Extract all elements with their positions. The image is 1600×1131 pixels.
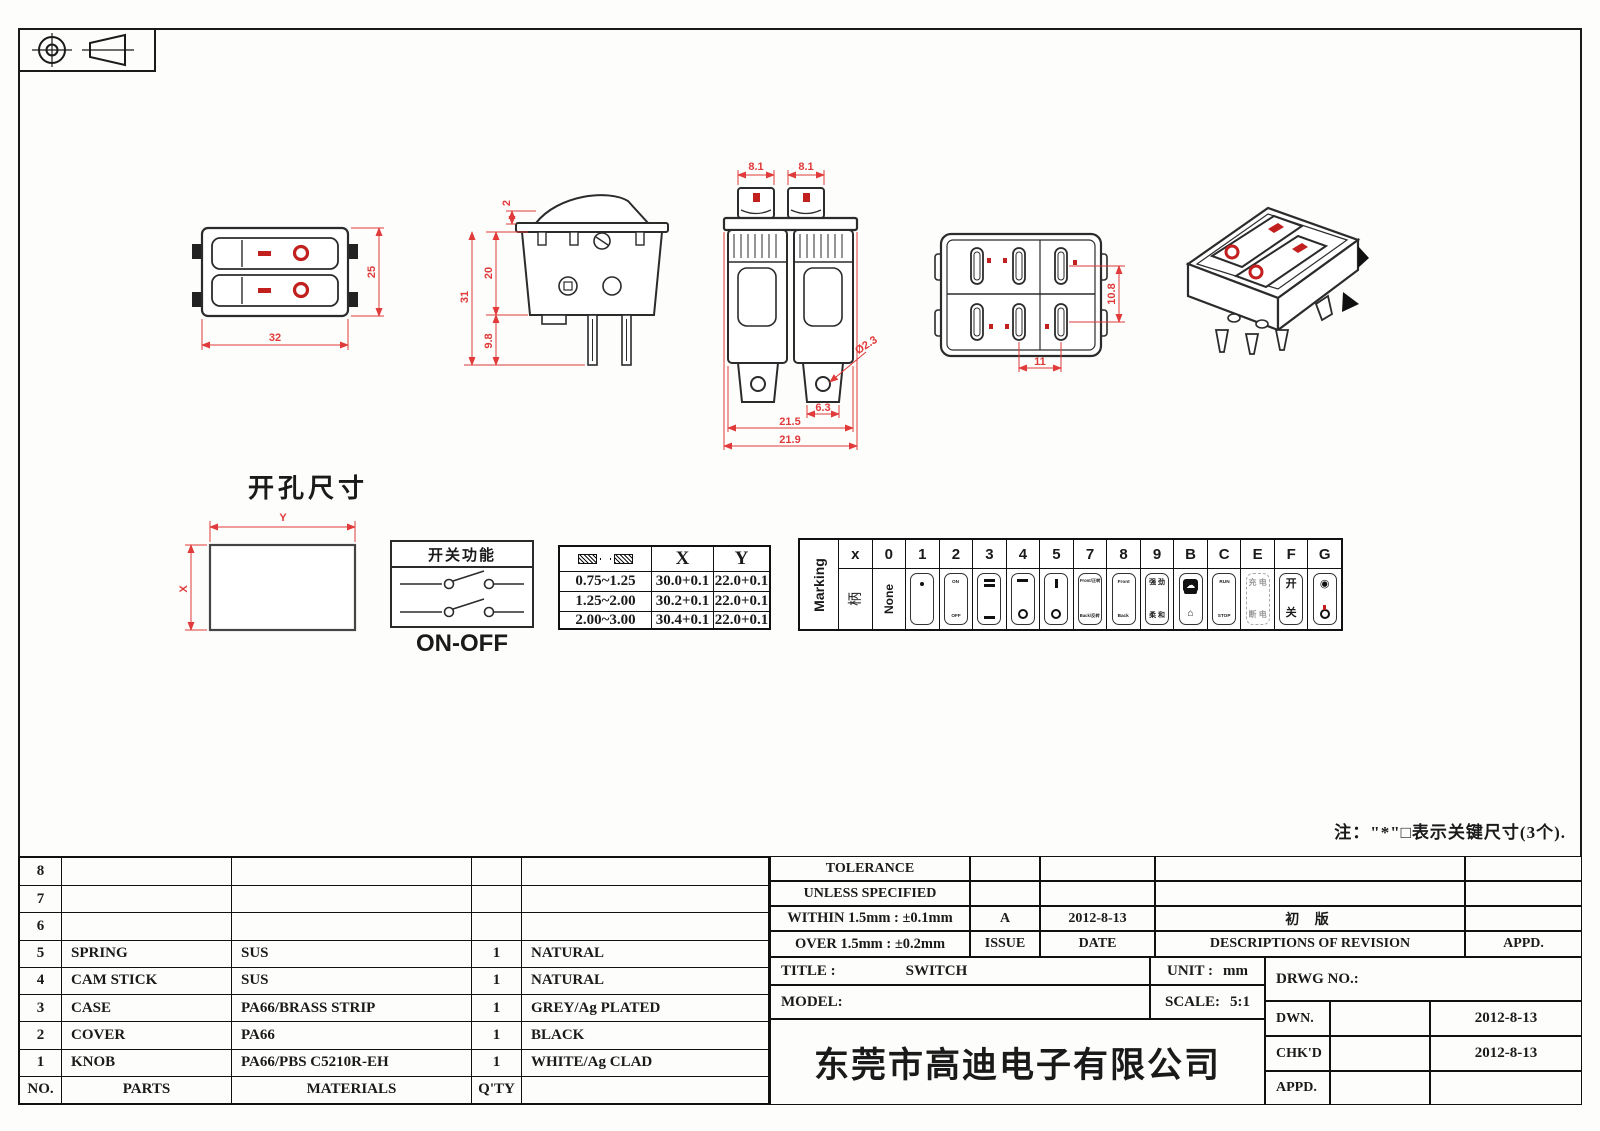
header-materials: MATERIALS <box>232 1076 472 1103</box>
chkd-name <box>1330 1036 1430 1071</box>
marking-code: 4 <box>1007 540 1040 569</box>
row-no: 5 <box>20 940 62 967</box>
dim-overall-width: 21.9 <box>779 434 800 446</box>
kai-label: 开 <box>1286 579 1297 590</box>
marking-col-2: 2 ONOFF <box>940 540 974 629</box>
header-qty: Q'TY <box>472 1076 522 1103</box>
panel-size-table: X Y 0.75~1.25 30.0+0.1 22.0+0.1 1.25~2.0… <box>558 545 771 630</box>
tolerance-title-1: TOLERANCE <box>770 856 970 881</box>
part-qty: 1 <box>472 994 522 1021</box>
projection-symbol-box <box>18 28 156 72</box>
table-cell: 22.0+0.1 <box>714 572 769 592</box>
drwg-no-cell: DRWG NO.: <box>1265 957 1582 1001</box>
part-name <box>62 885 232 912</box>
vertical-bar-icon <box>1055 579 1058 588</box>
dim-knob-right: 8.1 <box>798 161 813 173</box>
col-header-y: Y <box>714 547 769 572</box>
appd-label: APPD. <box>1465 931 1582 957</box>
cutout-view: Y X <box>175 505 375 640</box>
marking-col-5: 5 <box>1040 540 1074 629</box>
row-no: 4 <box>20 967 62 994</box>
empty-cell <box>1155 881 1465 906</box>
title-block: TOLERANCE UNLESS SPECIFIED WITHIN 1.5mm … <box>770 856 1582 1105</box>
company-name: 东莞市高迪电子有限公司 <box>770 1019 1265 1105</box>
dim-side-body: 20 <box>483 267 495 279</box>
part-material: SUS <box>232 940 472 967</box>
front-view: 32 25 <box>178 198 398 368</box>
model-cell: MODEL: <box>770 985 1150 1019</box>
part-finish: BLACK <box>522 1021 768 1048</box>
part-name: COVER <box>62 1021 232 1048</box>
dim-bottom-horizontal: 11 <box>1034 356 1046 368</box>
dim-side-pin: 9.8 <box>483 333 495 348</box>
empty-cell <box>1465 856 1582 881</box>
part-material <box>232 912 472 939</box>
part-material: SUS <box>232 967 472 994</box>
marking-row-label: Marking <box>800 540 839 629</box>
revision-desc-label: DESCRIPTIONS OF REVISION <box>1155 931 1465 957</box>
target-power-marking-pill: ◉ <box>1313 573 1337 625</box>
chkd-date: 2012-8-13 <box>1430 1036 1582 1071</box>
scale-cell: SCALE: 5:1 <box>1150 985 1265 1019</box>
table-cell: 30.0+0.1 <box>652 572 714 592</box>
dim-body-width: 21.5 <box>779 416 800 428</box>
empty-cell <box>970 881 1040 906</box>
header-parts: PARTS <box>62 1076 232 1103</box>
bottom-view: 10.8 11 <box>925 222 1135 380</box>
parts-table: 8 7 6 5 SPRING SUS 1 NATURAL 4 CAM STICK… <box>18 856 770 1105</box>
end-view: 8.1 8.1 Ø2.3 6.3 21.5 21.9 <box>708 158 888 458</box>
part-material: PA66/PBS C5210R-EH <box>232 1049 472 1076</box>
marking-code: F <box>1275 540 1308 569</box>
marking-col-C: C RUNSTOP <box>1208 540 1242 629</box>
dim-front-height: 25 <box>366 266 378 278</box>
row-no: 2 <box>20 1021 62 1048</box>
drawing-sheet: 32 25 <box>0 0 1600 1131</box>
dwn-name <box>1330 1001 1430 1036</box>
switch-function-title: 开关功能 <box>392 542 532 568</box>
switch-function-box: 开关功能 <box>390 540 534 628</box>
part-material <box>232 885 472 912</box>
marking-col-x: x 柄 <box>839 540 873 629</box>
front-back-marking-pill: FrontBack <box>1112 573 1136 625</box>
line-circle-marking-pill <box>1044 573 1068 625</box>
dot-icon <box>920 582 924 586</box>
marking-code: 9 <box>1141 540 1174 569</box>
strong-label: 强 劲 <box>1149 579 1165 586</box>
part-qty: 1 <box>472 1049 522 1076</box>
row-no: 8 <box>20 858 62 885</box>
dot-marking-pill <box>910 573 934 625</box>
target-icon: ◉ <box>1320 579 1330 590</box>
empty-cell <box>1465 906 1582 931</box>
isometric-view <box>1150 172 1375 357</box>
part-name <box>62 912 232 939</box>
table-cell: 2.00~3.00 <box>560 612 652 629</box>
circle-icon <box>1051 609 1061 619</box>
scale-value: 5:1 <box>1230 994 1250 1011</box>
dim-cutout-y: Y <box>279 512 287 524</box>
date-label: DATE <box>1040 931 1155 957</box>
marking-code: B <box>1174 540 1207 569</box>
dwn-date: 2012-8-13 <box>1430 1001 1582 1036</box>
guan-label: 关 <box>1286 608 1297 619</box>
bar-circle-marking-pill <box>1011 573 1035 625</box>
marking-col-F: F 开关 <box>1275 540 1309 629</box>
power-icon <box>1320 609 1330 619</box>
marking-code: x <box>839 540 872 569</box>
charge-marking-pill: 充 电断 电 <box>1246 573 1270 625</box>
marking-code: C <box>1208 540 1241 569</box>
dim-side-total: 31 <box>459 291 471 303</box>
icon-marking-pill: ☁⌂ <box>1179 573 1203 625</box>
row-no: 1 <box>20 1049 62 1076</box>
marking-code: E <box>1241 540 1274 569</box>
table-cell: 0.75~1.25 <box>560 572 652 592</box>
key-dimension-note: 注："*"□表示关键尺寸(3个). <box>1334 818 1566 843</box>
dim-side-top: 2 <box>501 200 513 206</box>
table-cell: 22.0+0.1 <box>714 612 769 629</box>
revision-date: 2012-8-13 <box>1040 906 1155 931</box>
part-name: CASE <box>62 994 232 1021</box>
header-finish <box>522 1076 768 1103</box>
marking-col-0: 0 None <box>873 540 907 629</box>
empty-cell <box>1155 856 1465 881</box>
unit-label: UNIT : <box>1167 963 1213 980</box>
scale-label: SCALE: <box>1165 994 1220 1011</box>
empty-cell <box>1040 856 1155 881</box>
appd-row-label: APPD. <box>1265 1071 1330 1105</box>
part-material: PA66 <box>232 1021 472 1048</box>
empty-cell <box>1040 881 1155 906</box>
double-bar-icon <box>984 579 995 587</box>
charge-label: 充 电 <box>1249 579 1267 587</box>
dim-knob-left: 8.1 <box>748 161 763 173</box>
kai-guan-marking-pill: 开关 <box>1279 573 1303 625</box>
part-finish: WHITE/Ag CLAD <box>522 1049 768 1076</box>
marking-code: 0 <box>873 540 906 569</box>
marking-col-8: 8 FrontBack <box>1107 540 1141 629</box>
part-name <box>62 858 232 885</box>
revision-description: 初 版 <box>1155 906 1465 931</box>
dwn-label: DWN. <box>1265 1001 1330 1036</box>
table-cell: 22.0+0.1 <box>714 592 769 612</box>
onoff-label: ON-OFF <box>388 630 536 658</box>
empty-cell <box>970 856 1040 881</box>
side-view: 2 20 9.8 31 <box>450 183 690 393</box>
off-label: OFF <box>951 614 960 619</box>
dim-bottom-vertical: 10.8 <box>1106 283 1118 304</box>
stop-label: STOP <box>1218 614 1231 619</box>
marking-col-3: 3 <box>973 540 1007 629</box>
marking-code: 2 <box>940 540 973 569</box>
col-header-x: X <box>652 547 714 572</box>
run-label: RUN <box>1219 580 1229 585</box>
part-finish: NATURAL <box>522 967 768 994</box>
onoff-marking-pill: ONOFF <box>944 573 968 625</box>
bar-icon <box>984 616 995 619</box>
part-qty: 1 <box>472 940 522 967</box>
title-value: SWITCH <box>906 963 968 980</box>
empty-cell <box>1465 881 1582 906</box>
part-qty <box>472 885 522 912</box>
row-no: 6 <box>20 912 62 939</box>
marking-code: 8 <box>1107 540 1140 569</box>
part-qty <box>472 912 522 939</box>
part-name: CAM STICK <box>62 967 232 994</box>
marking-code: 7 <box>1074 540 1107 569</box>
bars-marking-pill <box>977 573 1001 625</box>
marking-col-E: E 充 电断 电 <box>1241 540 1275 629</box>
appd-date <box>1430 1071 1582 1105</box>
unit-value: mm <box>1223 963 1248 980</box>
part-finish: NATURAL <box>522 940 768 967</box>
part-qty: 1 <box>472 967 522 994</box>
knob-red-mark-left <box>753 193 760 202</box>
discharge-label: 断 电 <box>1249 611 1267 619</box>
part-qty <box>472 858 522 885</box>
title-label: TITLE : <box>781 963 836 980</box>
dim-front-width: 32 <box>269 332 281 344</box>
header-no: NO. <box>20 1076 62 1103</box>
issue-value: A <box>970 906 1040 931</box>
switch-circuit-symbols <box>392 568 532 628</box>
front-label: Front <box>1118 580 1130 585</box>
marking-col-B: B ☁⌂ <box>1174 540 1208 629</box>
part-name: SPRING <box>62 940 232 967</box>
part-name: KNOB <box>62 1049 232 1076</box>
table-cell: 30.2+0.1 <box>652 592 714 612</box>
bar-icon <box>1017 579 1028 582</box>
unit-cell: UNIT : mm <box>1150 957 1265 985</box>
front-label: Front/正转 <box>1080 579 1101 583</box>
dim-cutout-x: X <box>178 585 190 593</box>
marking-col-1: 1 <box>906 540 940 629</box>
table-cell: 1.25~2.00 <box>560 592 652 612</box>
run-stop-marking-pill: RUNSTOP <box>1212 573 1236 625</box>
part-material <box>232 858 472 885</box>
chkd-label: CHK'D <box>1265 1036 1330 1071</box>
title-row: TITLE : SWITCH <box>770 957 1150 985</box>
front-back-cn-marking-pill: Front/正转Back/反转 <box>1078 573 1102 625</box>
part-finish <box>522 912 768 939</box>
tolerance-over: OVER 1.5mm : ±0.2mm <box>770 931 970 957</box>
marking-code: 1 <box>906 540 939 569</box>
marking-code: 3 <box>973 540 1006 569</box>
marking-code: 5 <box>1040 540 1073 569</box>
tolerance-title-2: UNLESS SPECIFIED <box>770 881 970 906</box>
part-finish <box>522 858 768 885</box>
house-icon: ⌂ <box>1188 609 1194 619</box>
strong-soft-marking-pill: 强 劲柔 和 <box>1145 573 1169 625</box>
tolerance-within: WITHIN 1.5mm : ±0.1mm <box>770 906 970 931</box>
part-qty: 1 <box>472 1021 522 1048</box>
marking-col-7: 7 Front/正转Back/反转 <box>1074 540 1108 629</box>
marking-handle: 柄 <box>845 592 865 606</box>
issue-label: ISSUE <box>970 931 1040 957</box>
row-no: 3 <box>20 994 62 1021</box>
back-label: Back <box>1118 614 1129 619</box>
first-angle-projection-icon <box>24 32 150 68</box>
circle-icon <box>1018 609 1028 619</box>
appd-name <box>1330 1071 1430 1105</box>
marking-none: None <box>882 584 896 614</box>
part-finish <box>522 885 768 912</box>
dim-terminal-width: 6.3 <box>815 402 830 414</box>
marking-table: Marking x 柄 0 None 1 2 ONOFF 3 4 5 <box>798 538 1343 631</box>
marking-code: G <box>1308 540 1341 569</box>
row-no: 7 <box>20 885 62 912</box>
cutout-title: 开孔尺寸 <box>248 468 368 505</box>
part-material: PA66/BRASS STRIP <box>232 994 472 1021</box>
on-label: ON <box>952 580 959 585</box>
marking-col-9: 9 强 劲柔 和 <box>1141 540 1175 629</box>
panel-thickness-icon <box>560 547 652 572</box>
knob-red-mark-right <box>803 193 810 202</box>
part-finish: GREY/Ag PLATED <box>522 994 768 1021</box>
marking-col-G: G ◉ <box>1308 540 1341 629</box>
table-cell: 30.4+0.1 <box>652 612 714 629</box>
soft-label: 柔 和 <box>1149 612 1165 619</box>
cloud-badge-icon: ☁ <box>1183 579 1198 592</box>
back-label: Back/反转 <box>1080 614 1100 618</box>
marking-col-4: 4 <box>1007 540 1041 629</box>
